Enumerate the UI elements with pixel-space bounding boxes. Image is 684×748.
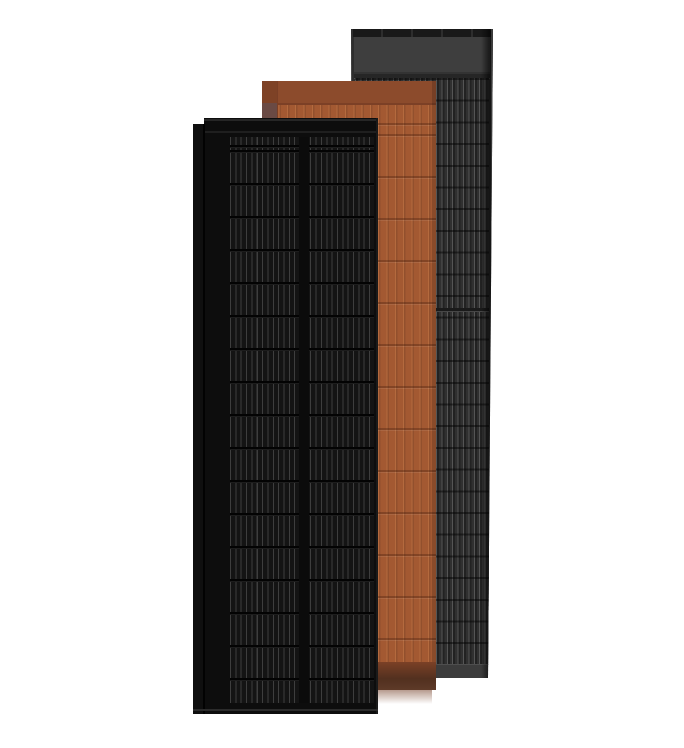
solar-panel-black: [193, 118, 378, 714]
black-panel-bottom-edge-highlight: [193, 709, 378, 711]
black-panel-flange-groove: [203, 124, 205, 714]
terracotta-panel-flange-shadow: [262, 103, 277, 119]
gray-panel-top-cap: [353, 29, 491, 37]
black-panel-frame-inner-line: [204, 131, 378, 133]
terracotta-panel-right-edge-shade: [432, 81, 436, 690]
product-image-canvas: [0, 0, 684, 748]
gray-panel-header-band: [354, 37, 490, 74]
black-panel-top-edge-highlight: [204, 119, 378, 121]
black-panel-left-flange: [193, 124, 203, 714]
black-panel-center-divider: [299, 137, 309, 703]
black-panel-right-edge: [376, 118, 378, 714]
black-panel-cell-area: [230, 137, 374, 703]
gray-panel-right-frame-shadow: [481, 29, 493, 678]
terracotta-panel-header-band: [262, 81, 436, 105]
